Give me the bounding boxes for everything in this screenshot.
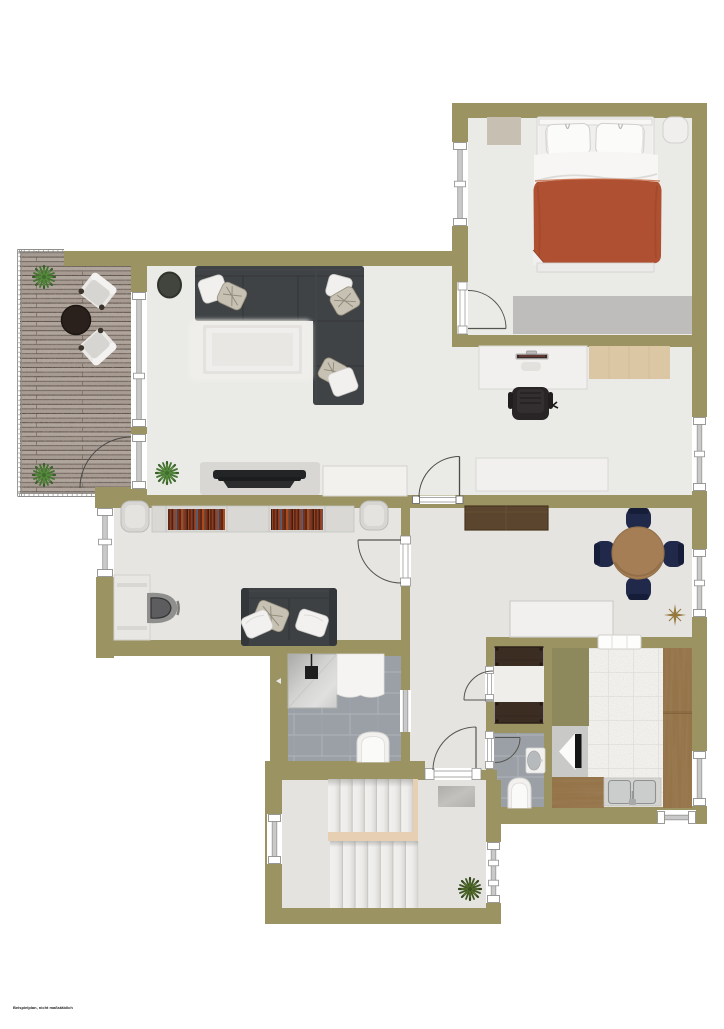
svg-text:Beispielplan, nicht maßstäblic: Beispielplan, nicht maßstäblich bbox=[13, 1005, 73, 1010]
